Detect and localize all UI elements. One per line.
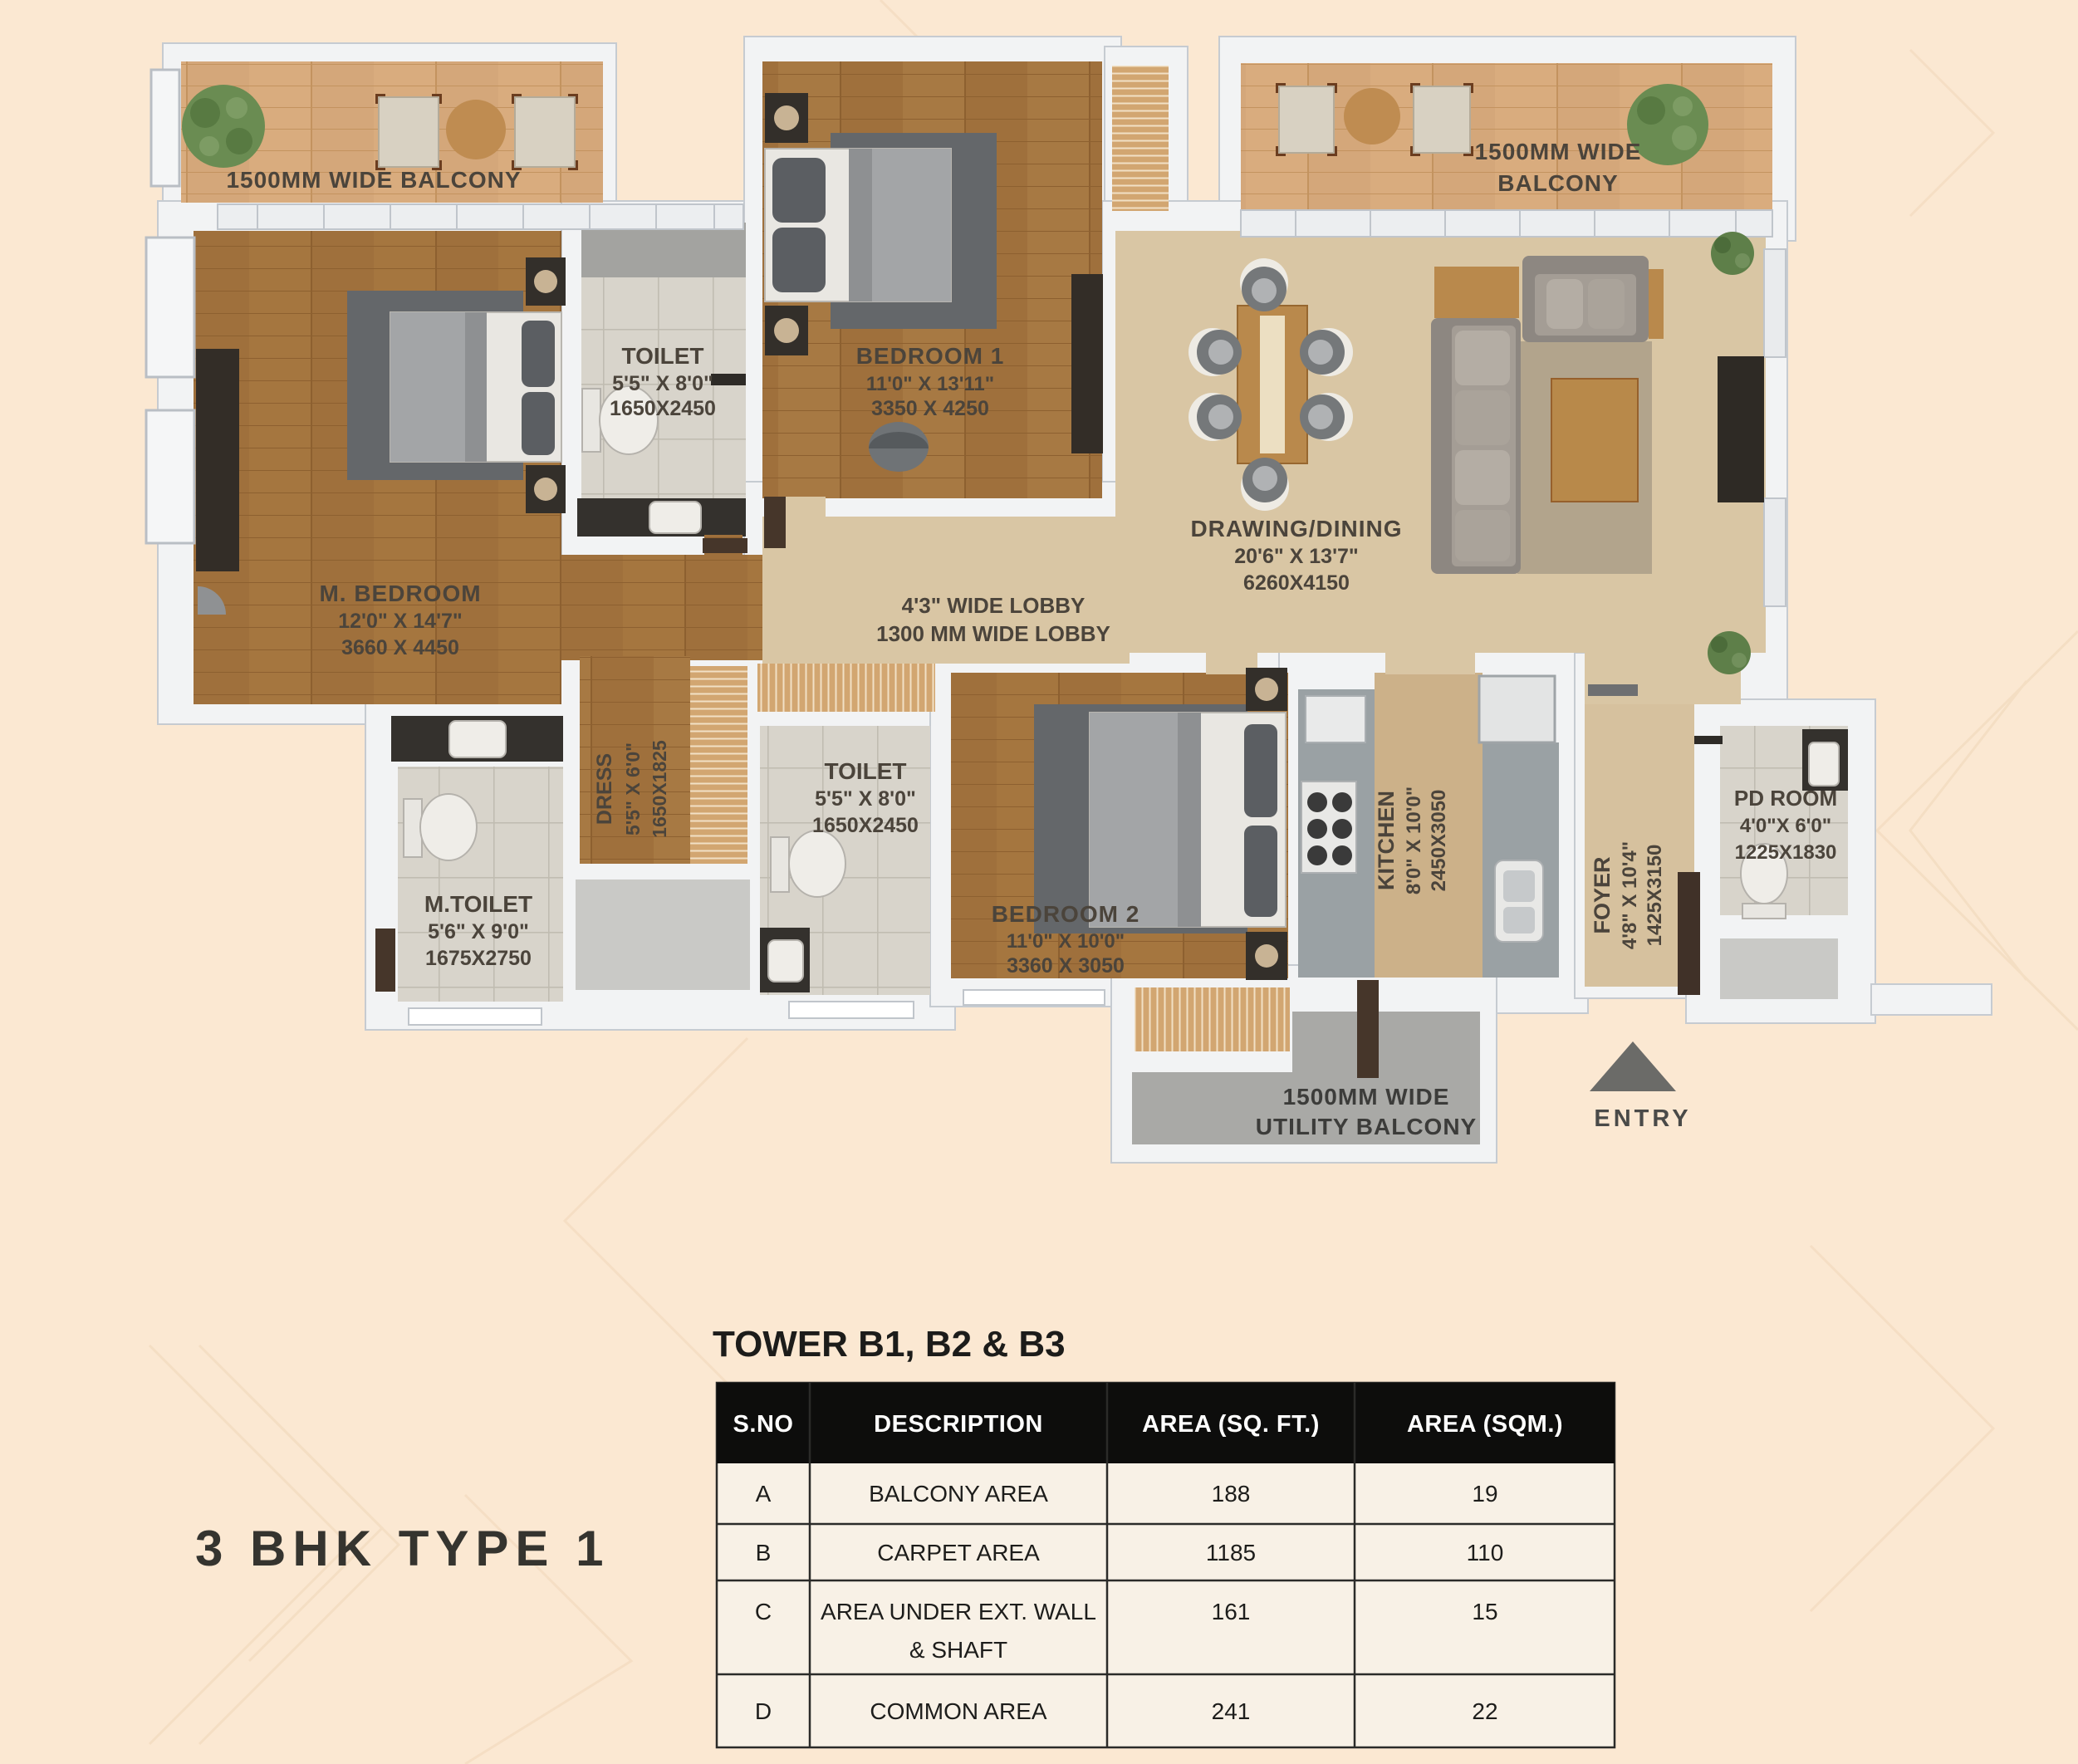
svg-text:C: C: [755, 1599, 772, 1624]
svg-text:AREA (SQM.): AREA (SQM.): [1407, 1411, 1563, 1438]
svg-text:11'0" X 13'11": 11'0" X 13'11": [866, 373, 994, 395]
svg-text:UTILITY BALCONY: UTILITY BALCONY: [1256, 1114, 1477, 1139]
svg-text:110: 110: [1467, 1540, 1504, 1566]
svg-text:1185: 1185: [1206, 1540, 1256, 1566]
svg-text:TOILET: TOILET: [824, 758, 906, 784]
svg-text:8'0" X 10'0": 8'0" X 10'0": [1403, 786, 1425, 894]
svg-text:5'5" X 6'0": 5'5" X 6'0": [622, 742, 644, 835]
svg-text:BALCONY AREA: BALCONY AREA: [869, 1481, 1048, 1507]
svg-text:4'8" X 10'4": 4'8" X 10'4": [1619, 841, 1641, 949]
svg-text:CARPET AREA: CARPET AREA: [877, 1540, 1040, 1566]
svg-text:DRAWING/DINING: DRAWING/DINING: [1190, 516, 1402, 541]
svg-text:ENTRY: ENTRY: [1594, 1105, 1691, 1132]
svg-text:1650X2450: 1650X2450: [610, 397, 716, 420]
svg-text:KITCHEN: KITCHEN: [1374, 791, 1399, 890]
svg-text:5'5" X 8'0": 5'5" X 8'0": [612, 372, 713, 395]
svg-text:D: D: [755, 1698, 772, 1724]
svg-text:5'6" X 9'0": 5'6" X 9'0": [428, 920, 529, 943]
svg-text:TOILET: TOILET: [621, 343, 703, 369]
svg-text:3360 X 3050: 3360 X 3050: [1007, 954, 1125, 978]
svg-text:DRESS: DRESS: [593, 753, 616, 825]
svg-text:BEDROOM 1: BEDROOM 1: [856, 343, 1005, 369]
svg-text:1500MM WIDE BALCONY: 1500MM WIDE BALCONY: [226, 167, 521, 193]
svg-text:19: 19: [1472, 1481, 1497, 1507]
svg-text:COMMON AREA: COMMON AREA: [870, 1698, 1046, 1724]
svg-text:1500MM WIDE: 1500MM WIDE: [1475, 139, 1642, 164]
svg-text:1675X2750: 1675X2750: [425, 947, 532, 970]
svg-text:DESCRIPTION: DESCRIPTION: [874, 1411, 1043, 1438]
svg-text:188: 188: [1212, 1481, 1251, 1507]
svg-text:20'6" X 13'7": 20'6" X 13'7": [1234, 545, 1359, 568]
svg-text:S.NO: S.NO: [733, 1411, 794, 1438]
svg-text:TOWER B1, B2 & B3: TOWER B1, B2 & B3: [713, 1324, 1066, 1365]
svg-text:1500MM WIDE: 1500MM WIDE: [1283, 1084, 1450, 1110]
svg-text:B: B: [756, 1540, 772, 1566]
svg-text:BEDROOM 2: BEDROOM 2: [992, 901, 1140, 927]
svg-text:12'0" X 14'7": 12'0" X 14'7": [338, 610, 463, 633]
svg-text:AREA UNDER EXT. WALL: AREA UNDER EXT. WALL: [821, 1599, 1096, 1624]
svg-text:5'5" X 8'0": 5'5" X 8'0": [815, 787, 916, 811]
svg-text:2450X3050: 2450X3050: [1428, 790, 1450, 892]
svg-text:FOYER: FOYER: [1590, 856, 1615, 933]
svg-text:1300 MM WIDE LOBBY: 1300 MM WIDE LOBBY: [876, 621, 1110, 646]
svg-text:1650X1825: 1650X1825: [649, 740, 670, 838]
svg-text:11'0" X 10'0": 11'0" X 10'0": [1007, 930, 1125, 953]
svg-text:3660 X 4450: 3660 X 4450: [341, 636, 459, 659]
svg-text:241: 241: [1212, 1698, 1251, 1724]
svg-text:BALCONY: BALCONY: [1497, 170, 1618, 196]
svg-text:15: 15: [1472, 1599, 1497, 1624]
svg-text:3350 X 4250: 3350 X 4250: [871, 397, 989, 420]
svg-text:AREA (SQ. FT.): AREA (SQ. FT.): [1142, 1411, 1320, 1438]
svg-text:161: 161: [1212, 1599, 1251, 1624]
svg-text:M.TOILET: M.TOILET: [424, 891, 532, 917]
svg-text:1650X2450: 1650X2450: [812, 814, 919, 837]
svg-text:1225X1830: 1225X1830: [1735, 841, 1837, 864]
svg-text:M. BEDROOM: M. BEDROOM: [319, 581, 481, 606]
svg-text:& SHAFT: & SHAFT: [909, 1637, 1007, 1663]
svg-text:3 BHK TYPE 1: 3 BHK TYPE 1: [195, 1521, 610, 1576]
svg-text:1425X3150: 1425X3150: [1644, 845, 1666, 947]
svg-text:4'0"X 6'0": 4'0"X 6'0": [1740, 815, 1831, 837]
svg-text:6260X4150: 6260X4150: [1243, 571, 1350, 595]
svg-text:4'3" WIDE LOBBY: 4'3" WIDE LOBBY: [902, 593, 1086, 618]
svg-text:A: A: [756, 1481, 772, 1507]
svg-text:22: 22: [1472, 1698, 1497, 1724]
svg-text:PD ROOM: PD ROOM: [1734, 786, 1837, 811]
